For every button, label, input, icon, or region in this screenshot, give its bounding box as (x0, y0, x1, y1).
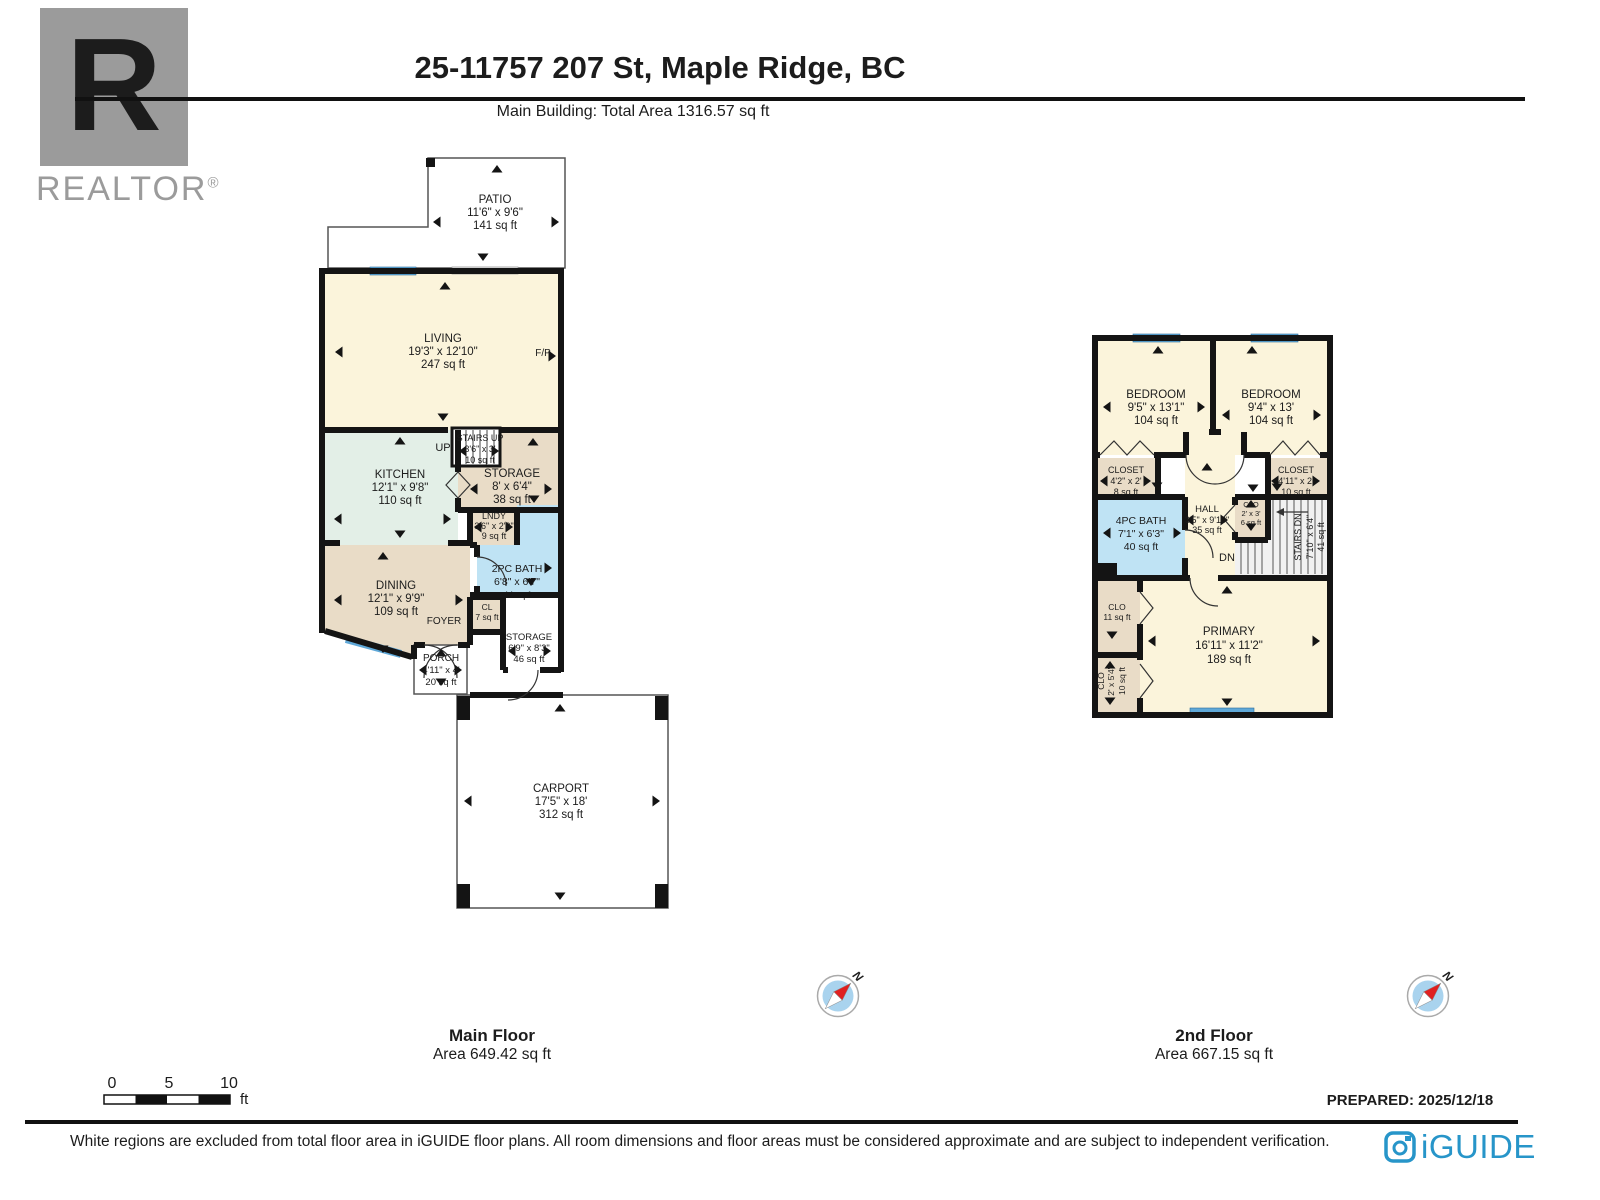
stairs-up-dir: UP (435, 442, 450, 454)
clo-upper-name: CLO (1108, 602, 1126, 612)
clo-center-dims: 2' x 3' (1241, 509, 1261, 518)
clo-lower-area: 10 sq ft (1117, 666, 1127, 695)
living-dims: 19'3" x 12'10" (408, 346, 477, 358)
porch-name: PORCH (423, 653, 459, 664)
registered-mark: ® (207, 175, 220, 192)
clo-center-area: 6 sq ft (1241, 518, 1262, 527)
second-floor-caption: 2nd Floor Area 667.15 sq ft (1155, 1026, 1273, 1064)
carport-name: CARPORT (533, 783, 589, 795)
title-underline (75, 97, 1525, 101)
lndy-dims: 3'6" x 2'9" (474, 521, 513, 531)
cl-area: 7 sq ft (475, 612, 499, 622)
bath4pc-name: 4PC BATH (1116, 515, 1167, 527)
second-floor-name: 2nd Floor (1155, 1026, 1273, 1046)
page-title: 25-11757 207 St, Maple Ridge, BC (414, 50, 905, 86)
lndy-area: 9 sq ft (482, 531, 507, 541)
kitchen-area: 110 sq ft (378, 495, 422, 507)
kitchen-name: KITCHEN (375, 469, 425, 481)
storage1-dims: 8' x 6'4" (492, 481, 532, 493)
scale-tick-5: 5 (165, 1075, 174, 1092)
dining-area: 109 sq ft (374, 606, 419, 618)
main-floor-area: Area 649.42 sq ft (433, 1046, 551, 1064)
dining-dims: 12'1" x 9'9" (368, 593, 425, 605)
closet1-dims: 4'2" x 2' (1110, 476, 1141, 486)
main-floor-plan: 44 sq ft PATIO 11'6" x 9'6" 141 sq ft LI… (290, 145, 690, 920)
stairs-dn-area: 41 sq ft (1316, 522, 1326, 552)
stairs-up-area: 10 sq ft (465, 455, 495, 465)
clo-upper-area: 11 sq ft (1103, 612, 1131, 622)
prepared-date: PREPARED: 2025/12/18 (1327, 1092, 1493, 1109)
dining-name: DINING (376, 580, 416, 592)
clo-center-name: CLO (1243, 500, 1259, 509)
bedroom1-dims: 9'5" x 13'1" (1128, 402, 1185, 414)
iguide-camera-icon (1383, 1130, 1417, 1164)
compass-second-floor: N (1393, 961, 1463, 1031)
realtor-logo-r: R (66, 11, 161, 158)
hall-dims: 3'5" x 9'10" (1185, 515, 1229, 525)
living-name: LIVING (424, 333, 462, 345)
page-subtitle: Main Building: Total Area 1316.57 sq ft (497, 103, 770, 121)
primary-area: 189 sq ft (1207, 654, 1252, 666)
bath2pc-dims: 6'8" x 6'7" (494, 576, 540, 588)
patio-dims: 11'6" x 9'6" (467, 207, 523, 219)
primary-dims: 16'11" x 11'2" (1195, 640, 1263, 652)
clo-lower-name: CLO (1096, 672, 1106, 690)
scale-unit: ft (240, 1091, 249, 1108)
patio-name: PATIO (479, 194, 512, 206)
closet1-name: CLOSET (1108, 465, 1145, 475)
carport-area: 312 sq ft (539, 809, 584, 821)
main-floor-caption: Main Floor Area 649.42 sq ft (433, 1026, 551, 1064)
foyer-label: FOYER (427, 616, 461, 627)
disclaimer-text: White regions are excluded from total fl… (70, 1133, 1330, 1151)
scale-bar: 0 5 10 ft (95, 1060, 270, 1115)
storage2-dims: 6'9" x 8'3" (508, 643, 550, 654)
stairs-up-dims: 3'6" x 3' (464, 444, 495, 454)
living-area: 247 sq ft (421, 359, 466, 371)
lndy-name: LNDY (482, 511, 506, 521)
main-floor-name: Main Floor (433, 1026, 551, 1046)
footer-divider (25, 1120, 1518, 1124)
primary-name: PRIMARY (1203, 626, 1256, 638)
fireplace-label: F/P (535, 348, 551, 359)
closet2-dims: 4'11" x 2' (1278, 476, 1314, 486)
closet1-area: 8 sq ft (1114, 487, 1139, 497)
realtor-wordmark: REALTOR® (36, 170, 221, 209)
stairs-up-name: STAIRS UP (457, 433, 504, 443)
second-floor-plan: BEDROOM 9'5" x 13'1" 104 sq ft BEDROOM 9… (1080, 320, 1350, 730)
kitchen-dims: 12'1" x 9'8" (372, 482, 429, 494)
hall-name: HALL (1195, 504, 1219, 515)
storage2-area: 46 sq ft (513, 654, 545, 665)
bedroom1-name: BEDROOM (1126, 389, 1185, 401)
storage1-name: STORAGE (484, 468, 540, 480)
patio-area: 141 sq ft (473, 220, 518, 232)
iguide-logo: iGUIDE (1383, 1128, 1536, 1166)
scale-tick-0: 0 (108, 1075, 117, 1092)
bath4pc-dims: 7'1" x 6'3" (1118, 528, 1164, 540)
porch-dims: 4'11" x 4' (422, 665, 460, 676)
closet2-area: 10 sq ft (1281, 487, 1311, 497)
clo-lower-dims: 2' x 5'4" (1106, 666, 1116, 695)
bath2pc-name: 2PC BATH (492, 563, 543, 575)
carport-dims: 17'5" x 18' (535, 796, 588, 808)
stairs-dn-dir: DN (1219, 552, 1235, 564)
stairs-dn-name: STAIRS DN (1293, 513, 1303, 560)
cl-name: CL (482, 602, 493, 612)
realtor-word-text: REALTOR (36, 170, 207, 208)
bedroom2-dims: 9'4" x 13' (1248, 402, 1294, 414)
scale-tick-10: 10 (220, 1075, 238, 1092)
storage1-area: 38 sq ft (493, 494, 532, 506)
iguide-wordmark: iGUIDE (1421, 1128, 1536, 1166)
bedroom1-area: 104 sq ft (1134, 415, 1179, 427)
bath4pc-area: 40 sq ft (1124, 541, 1159, 553)
compass-main-floor: N (803, 961, 873, 1031)
closet2-name: CLOSET (1278, 465, 1315, 475)
storage2-name: STORAGE (506, 632, 552, 643)
realtor-logo-mark: R (40, 8, 188, 166)
porch-area: 20 sq ft (425, 677, 457, 688)
second-floor-area: Area 667.15 sq ft (1155, 1046, 1273, 1064)
realtor-logo: R (40, 8, 188, 171)
bedroom2-area: 104 sq ft (1249, 415, 1294, 427)
hall-area: 35 sq ft (1192, 525, 1222, 535)
stairs-dn-dims: 7'10" x 6'4" (1305, 515, 1315, 559)
bedroom2-name: BEDROOM (1241, 389, 1300, 401)
